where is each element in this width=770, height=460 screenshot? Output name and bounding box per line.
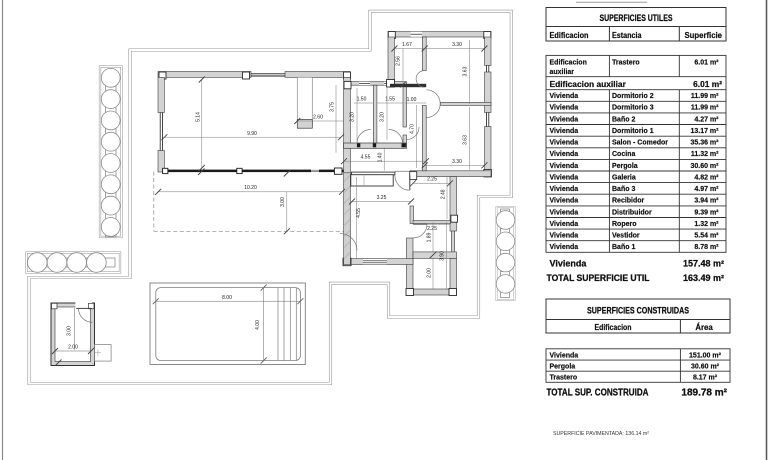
svg-text:Pergola: Pergola	[612, 163, 638, 170]
svg-text:1.50: 1.50	[357, 96, 367, 102]
svg-text:auxiliar: auxiliar	[550, 69, 575, 76]
svg-text:Vivienda: Vivienda	[550, 174, 579, 181]
svg-text:2.25: 2.25	[427, 177, 437, 183]
svg-text:Baño 3: Baño 3	[612, 186, 635, 193]
svg-text:3.20: 3.20	[349, 112, 355, 122]
svg-text:189.78 m²: 189.78 m²	[681, 388, 727, 399]
svg-text:3.25: 3.25	[377, 195, 387, 201]
svg-text:1.55: 1.55	[385, 96, 395, 102]
svg-text:Vivienda: Vivienda	[550, 198, 579, 205]
svg-text:30.60 m²: 30.60 m²	[690, 163, 719, 170]
svg-text:1.89: 1.89	[426, 232, 432, 242]
svg-text:Área: Área	[695, 323, 713, 332]
svg-text:2.56: 2.56	[396, 56, 402, 66]
svg-text:Vivienda: Vivienda	[550, 93, 579, 100]
svg-text:2.25: 2.25	[427, 226, 437, 232]
svg-text:Cocina: Cocina	[612, 151, 635, 158]
svg-text:3.63: 3.63	[463, 135, 469, 145]
svg-text:Edificacion auxiliar: Edificacion auxiliar	[550, 79, 627, 89]
svg-text:8.78 m²: 8.78 m²	[694, 244, 719, 251]
svg-text:1.67: 1.67	[402, 42, 412, 48]
svg-text:151.00 m²: 151.00 m²	[689, 352, 722, 359]
svg-text:TOTAL SUP. CONSTRUIDA: TOTAL SUP. CONSTRUIDA	[547, 388, 649, 399]
svg-text:Vivienda: Vivienda	[550, 259, 588, 269]
svg-text:Dormitorio 2: Dormitorio 2	[612, 93, 654, 100]
svg-text:1.32 m²: 1.32 m²	[694, 221, 719, 228]
svg-text:1.40: 1.40	[377, 152, 383, 162]
svg-text:Dormitorio 1: Dormitorio 1	[612, 128, 654, 135]
svg-text:Vivienda: Vivienda	[550, 116, 579, 123]
svg-text:8.00: 8.00	[222, 295, 232, 301]
svg-text:5.14: 5.14	[196, 112, 202, 122]
svg-text:SUPERFICIES UTILES: SUPERFICIES UTILES	[600, 13, 673, 23]
svg-text:Vivienda: Vivienda	[550, 233, 579, 240]
svg-text:4.82 m²: 4.82 m²	[694, 174, 719, 181]
svg-text:Pergola: Pergola	[550, 363, 576, 370]
svg-text:Ropero: Ropero	[612, 221, 637, 228]
svg-text:Salon - Comedor: Salon - Comedor	[612, 140, 668, 147]
svg-text:9.90: 9.90	[247, 131, 257, 137]
svg-text:3.90: 3.90	[440, 251, 446, 261]
svg-text:1.00: 1.00	[407, 97, 417, 103]
svg-text:4.27 m²: 4.27 m²	[694, 116, 719, 123]
svg-text:3.94 m²: 3.94 m²	[694, 198, 719, 205]
svg-text:Vivienda: Vivienda	[550, 163, 579, 170]
svg-text:Vivienda: Vivienda	[550, 209, 579, 216]
svg-text:3.75: 3.75	[329, 102, 335, 112]
svg-text:Vivienda: Vivienda	[550, 221, 579, 228]
svg-text:3.30: 3.30	[452, 159, 462, 165]
svg-text:30.60 m²: 30.60 m²	[691, 363, 720, 370]
svg-text:Vivienda: Vivienda	[550, 244, 579, 251]
svg-text:Distribuidor: Distribuidor	[612, 209, 652, 216]
svg-text:2.60: 2.60	[313, 115, 323, 121]
svg-text:11.32 m²: 11.32 m²	[691, 151, 719, 158]
svg-text:11.99 m²: 11.99 m²	[691, 105, 719, 112]
svg-text:Vivienda: Vivienda	[550, 140, 579, 147]
svg-text:3.30: 3.30	[452, 42, 462, 48]
svg-text:8.17 m²: 8.17 m²	[693, 375, 718, 382]
svg-text:2.48: 2.48	[440, 189, 446, 199]
svg-text:3.20: 3.20	[379, 112, 385, 122]
svg-text:3.00: 3.00	[280, 197, 286, 207]
svg-text:Galeria: Galeria	[612, 174, 636, 181]
svg-text:Trastero: Trastero	[550, 375, 578, 382]
svg-text:Edificacion: Edificacion	[550, 59, 587, 66]
svg-text:5.54 m²: 5.54 m²	[694, 233, 719, 240]
svg-text:2.00: 2.00	[68, 345, 78, 351]
svg-text:9.39 m²: 9.39 m²	[694, 209, 719, 216]
svg-text:Edificacion: Edificacion	[595, 323, 632, 332]
svg-text:4.00: 4.00	[255, 320, 261, 330]
svg-text:157.48 m²: 157.48 m²	[683, 259, 724, 269]
svg-text:TOTAL SUPERFICIE UTIL: TOTAL SUPERFICIE UTIL	[547, 273, 650, 283]
svg-text:Edificacion: Edificacion	[550, 31, 589, 40]
svg-text:163.49 m²: 163.49 m²	[683, 273, 724, 283]
svg-text:3.63: 3.63	[463, 66, 469, 76]
svg-text:Vivienda: Vivienda	[550, 186, 579, 193]
svg-text:Estancia: Estancia	[612, 31, 642, 40]
svg-text:6.01 m²: 6.01 m²	[693, 79, 722, 89]
svg-text:Vivienda: Vivienda	[550, 151, 579, 158]
svg-text:Vestidor: Vestidor	[612, 233, 640, 240]
svg-text:13.17 m²: 13.17 m²	[690, 128, 719, 135]
svg-text:Superficie: Superficie	[685, 31, 723, 40]
svg-text:35.36 m²: 35.36 m²	[690, 140, 719, 147]
svg-text:4.97 m²: 4.97 m²	[694, 186, 719, 193]
svg-text:11.99 m²: 11.99 m²	[691, 93, 719, 100]
svg-text:3.00: 3.00	[67, 326, 73, 336]
svg-text:Trastero: Trastero	[612, 59, 640, 66]
svg-text:Vivienda: Vivienda	[550, 352, 579, 359]
svg-text:SUPERFICIES CONSTRUIDAS: SUPERFICIES CONSTRUIDAS	[587, 306, 689, 316]
svg-text:4.55: 4.55	[356, 208, 362, 218]
svg-text:Vivienda: Vivienda	[550, 128, 579, 135]
svg-text:6.01 m²: 6.01 m²	[694, 59, 719, 66]
svg-text:Baño 1: Baño 1	[612, 244, 635, 251]
svg-text:SUPERFICIE PAVIMENTADA: 136.14: SUPERFICIE PAVIMENTADA: 136.14 m²	[553, 431, 649, 437]
svg-text:2.00: 2.00	[426, 268, 432, 278]
svg-text:10.20: 10.20	[244, 185, 257, 191]
svg-text:4.55: 4.55	[361, 154, 371, 160]
svg-text:Baño 2: Baño 2	[612, 116, 635, 123]
svg-text:Vivienda: Vivienda	[550, 105, 579, 112]
svg-text:Dormitorio 3: Dormitorio 3	[612, 105, 654, 112]
svg-text:Recibidor: Recibidor	[612, 198, 645, 205]
svg-text:4.70: 4.70	[410, 124, 416, 134]
